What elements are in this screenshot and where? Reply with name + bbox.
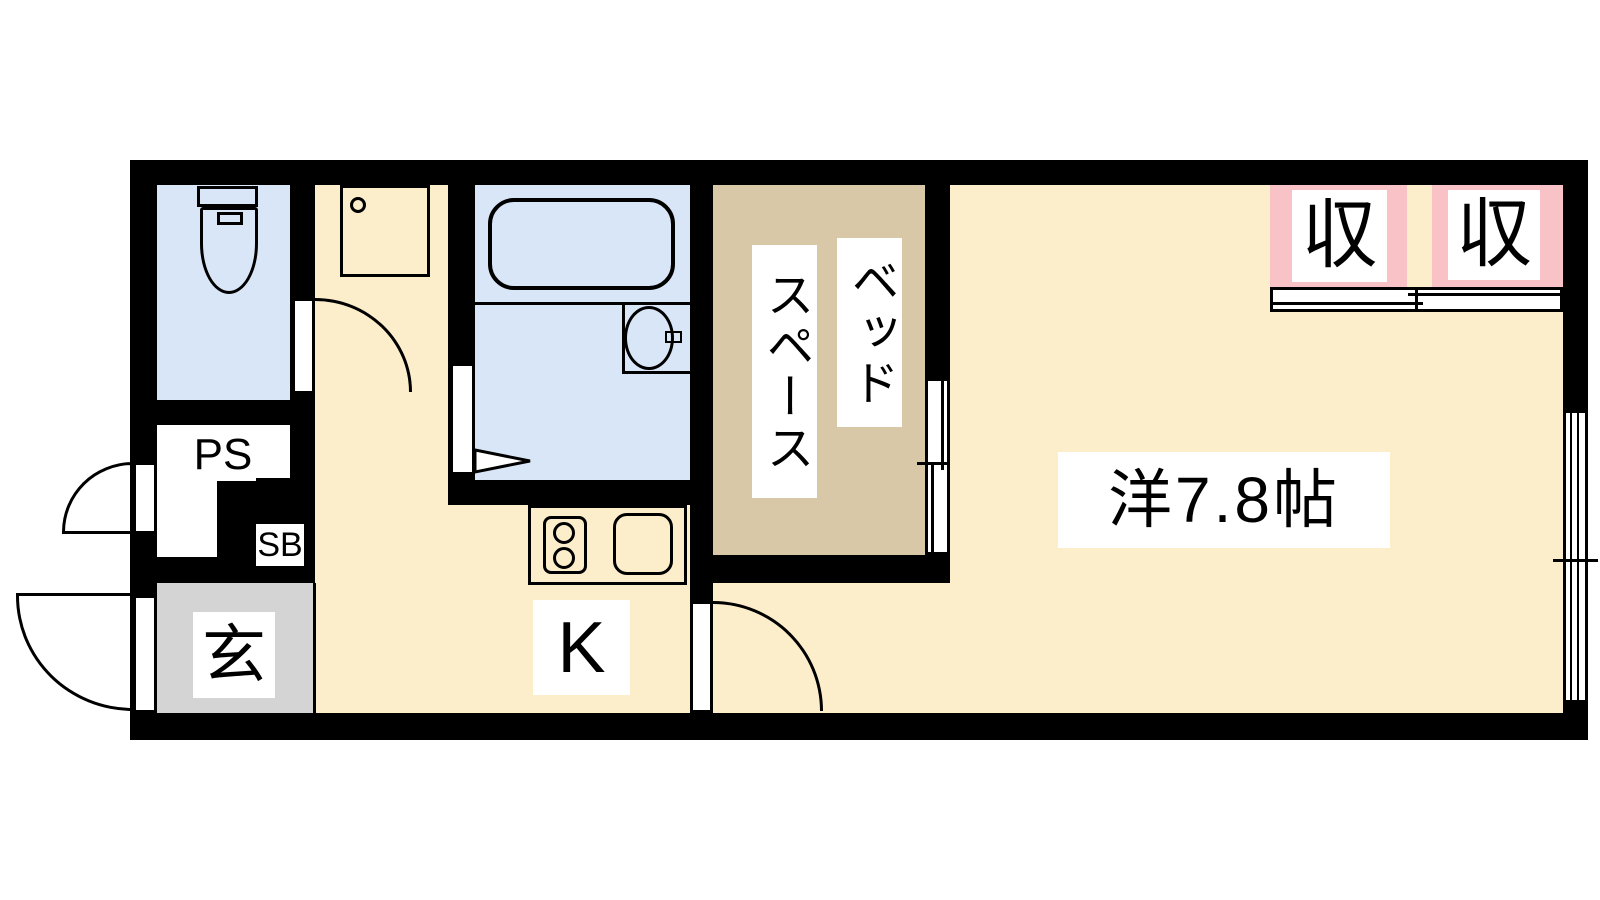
closet-sliding-door-track-line (1270, 302, 1423, 305)
bed-space-sliding-door-line (941, 378, 944, 470)
toilet-door-leaf (292, 298, 315, 394)
toilet-lid-notch (217, 212, 243, 225)
closet-right-label: 収 (1448, 190, 1540, 280)
closet-sliding-door-tick (1415, 287, 1418, 312)
floorplan-page: { "plan": { "labels": { "pipe_space": "P… (0, 0, 1600, 900)
bathroom-folding-door-arrow (475, 446, 533, 476)
entrance-door-leaf (133, 595, 157, 713)
stove-burner-icon (553, 547, 575, 569)
bed-space-sliding-door-tick (917, 462, 950, 465)
bathroom-divider-line (475, 302, 690, 305)
ps-exterior-door-open-line (62, 531, 133, 534)
bathroom-door-leaf (450, 363, 475, 475)
shoe-box-label: SB (256, 524, 304, 566)
pipe-space-label: PS (190, 429, 256, 481)
bed-space-sliding-door (925, 378, 950, 555)
window-right (1563, 410, 1588, 703)
stove-burner-icon (553, 522, 575, 544)
main-room-label: 洋7.8帖 (1058, 452, 1390, 548)
ps-exterior-door-leaf (133, 462, 157, 534)
entrance-door-swing-arc (16, 596, 133, 711)
closet-left-label: 収 (1292, 190, 1387, 282)
entrance-door-open-line (16, 593, 134, 596)
main-room-door-leaf (690, 601, 713, 713)
window-center-tick (1553, 559, 1598, 562)
entrance-label: 玄 (193, 612, 275, 698)
bed-space-label-line1: ベッド (837, 238, 902, 427)
kitchen-label: K (533, 600, 630, 695)
washstand-faucet-icon (350, 197, 366, 213)
kitchen-sink-icon (613, 513, 673, 575)
closet-sliding-door-track-line (1408, 293, 1563, 296)
floorplan: PS SB 玄 K ベッド スペース 洋7.8帖 収 収 (0, 0, 1600, 900)
basin-nook-line-h (622, 371, 690, 374)
washbasin-tap-icon (665, 331, 682, 343)
pipe-space-floor-lower (157, 478, 217, 557)
ps-exterior-door-swing-arc (62, 462, 133, 532)
entrance-step-line (313, 583, 316, 713)
bed-space-label-line2: スペース (752, 245, 817, 498)
bed-space-sliding-door-line (931, 462, 934, 555)
window-pane-line (1577, 410, 1579, 703)
window-pane-line (1570, 410, 1572, 703)
toilet-tank-icon (197, 186, 258, 207)
bathtub-icon (488, 198, 675, 290)
